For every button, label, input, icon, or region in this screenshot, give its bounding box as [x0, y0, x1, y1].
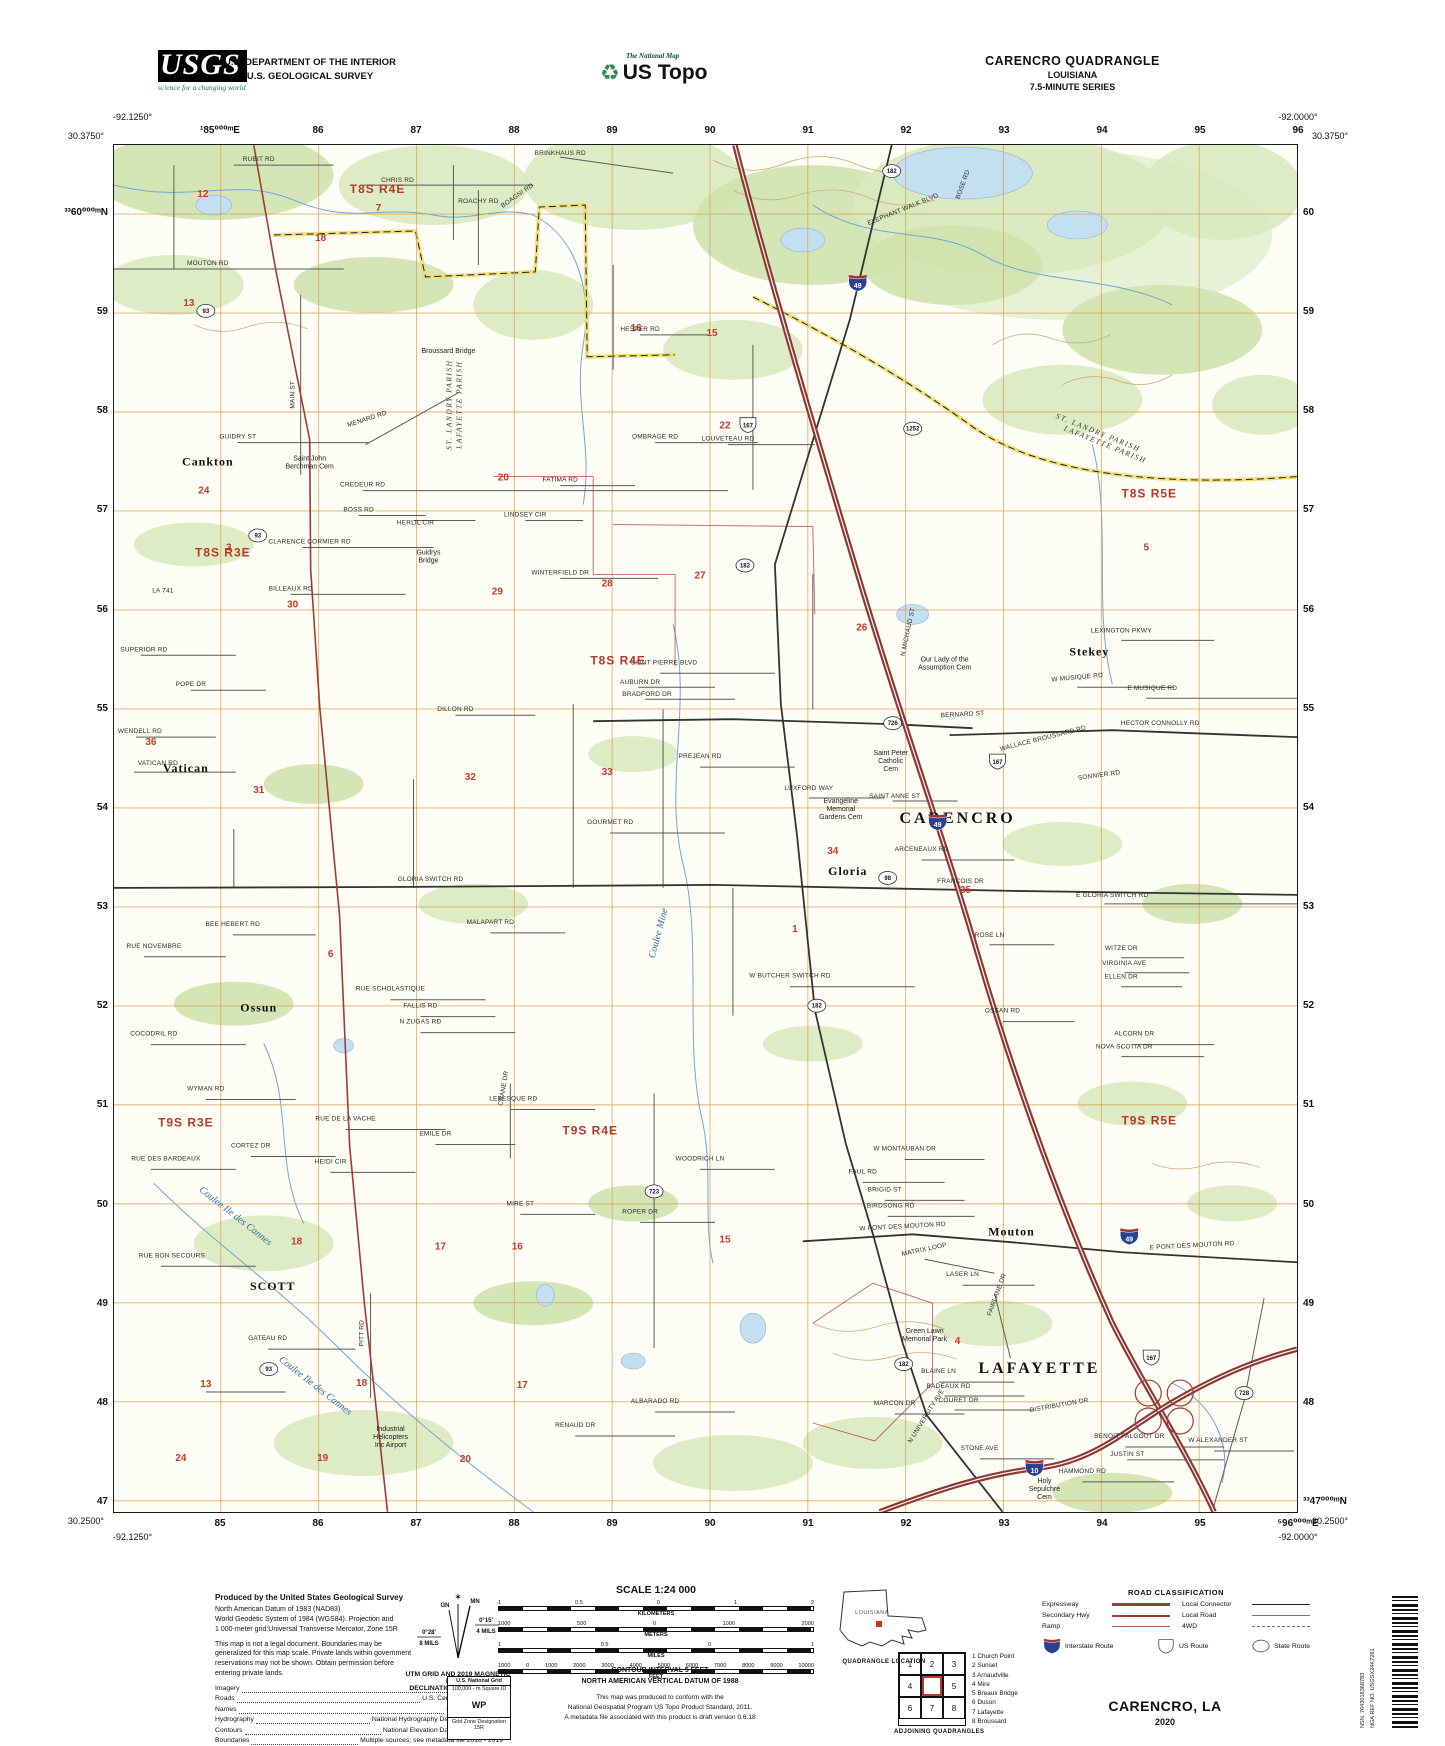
- rd-label: BOSS RD: [343, 507, 374, 514]
- town-label: T8S R3E: [195, 545, 251, 559]
- rd-label: BEE HEBERT RD: [206, 921, 261, 928]
- sec-label: 13: [200, 1379, 212, 1390]
- place-label: SCOTT: [250, 1279, 296, 1293]
- rd-label: LINDSEY CIR: [504, 512, 547, 519]
- interstate-shield: [1044, 1639, 1060, 1654]
- sec-label: 1: [792, 924, 798, 935]
- svg-text:182: 182: [899, 1362, 910, 1368]
- adjoining-cell: 8: [943, 1697, 965, 1719]
- rd-label: ALBARADO RD: [631, 1398, 680, 1405]
- svg-text:93: 93: [265, 1367, 272, 1373]
- gn-label: GN: [441, 1603, 450, 1609]
- grid-label: 93: [959, 125, 1049, 136]
- rd-label: HECTOR CONNOLLY RD: [1121, 720, 1200, 727]
- grid-label: 86: [273, 125, 363, 136]
- rd-label: W BUTCHER SWITCH RD: [749, 973, 831, 980]
- place-label: Ossun: [240, 1001, 277, 1015]
- svg-text:167: 167: [993, 760, 1004, 766]
- town-label: T8S R4E: [350, 182, 406, 196]
- rd-label: GLORIA SWITCH RD: [398, 876, 464, 883]
- standard-note: This map was produced to conform with th…: [470, 1693, 850, 1723]
- grid-label: 50: [0, 1199, 108, 1210]
- road-class-row: 4WD: [1182, 1623, 1310, 1630]
- gn-mils: 8 MILS: [419, 1641, 438, 1647]
- sec-label: 12: [197, 189, 209, 200]
- state-label: LOUISIANA: [855, 1610, 889, 1616]
- usgs-topo-sheet: USGS science for a changing world U.S. D…: [0, 0, 1445, 1746]
- svg-text:49: 49: [934, 822, 942, 829]
- quad-series: 7.5-MINUTE SERIES: [940, 82, 1205, 92]
- grid-label: 51: [1303, 1099, 1423, 1110]
- svg-text:49: 49: [854, 283, 862, 290]
- grid-label: 53: [0, 901, 108, 912]
- quad-title-block: CARENCRO QUADRANGLE LOUISIANA 7.5-MINUTE…: [940, 54, 1205, 92]
- place-label: Vatican: [163, 761, 209, 775]
- quad-title: CARENCRO QUADRANGLE: [940, 54, 1205, 68]
- grid-label: 91: [763, 1518, 853, 1529]
- mn-mils: 4 MILS: [476, 1629, 495, 1635]
- svg-text:1252: 1252: [906, 427, 920, 433]
- sec-label: 22: [719, 421, 731, 432]
- parish-label: LAFAYETTE PARISH: [454, 361, 463, 450]
- state-route-shield: 182: [883, 165, 901, 178]
- state-route-shield: 182: [895, 1358, 913, 1371]
- svg-text:723: 723: [649, 1189, 660, 1195]
- grid-label: 88: [469, 125, 559, 136]
- state-route-shield: 1252: [904, 422, 922, 435]
- grid-label: 49: [1303, 1298, 1423, 1309]
- rd-label: ROSE LN: [975, 932, 1005, 939]
- rd-label: NOVA SCOTIA DR: [1096, 1044, 1153, 1051]
- sec-label: 7: [376, 203, 382, 214]
- adjoining-cell: 7: [921, 1697, 943, 1719]
- grid-label: 95: [1155, 1518, 1245, 1529]
- contour-note: CONTOUR INTERVAL 5 FEET: [470, 1666, 850, 1677]
- legend-shield-item: US Route: [1156, 1637, 1208, 1655]
- corner-lon: -92.1250°: [113, 112, 152, 122]
- quad-location-marker: [876, 1621, 882, 1627]
- rd-label: E GLORIA SWITCH RD: [1076, 892, 1148, 899]
- state-route-shield: 182: [736, 559, 754, 572]
- rd-label: MAIN ST: [290, 381, 297, 409]
- grid-label: 60: [1303, 207, 1423, 218]
- grid-label: 89: [567, 1518, 657, 1529]
- rd-label: MOUTON RD: [187, 260, 229, 267]
- grid-label: 89: [567, 125, 657, 136]
- town-label: T8S R4E: [590, 653, 646, 667]
- usng-zone: 15R: [448, 1725, 510, 1731]
- grid-label: 90: [665, 1518, 755, 1529]
- rd-label: BADEAUX RD: [927, 1383, 971, 1390]
- barcode-text: NSN. 7643016368783 NGA REF NO. USGSX24K7…: [1352, 1596, 1386, 1728]
- rd-label: BIRDSONG RD: [867, 1202, 915, 1209]
- sec-label: 18: [291, 1236, 303, 1247]
- rd-label: COURET DR: [939, 1397, 979, 1404]
- sec-label: 36: [145, 737, 157, 748]
- sec-label: 31: [253, 785, 265, 796]
- sec-label: 15: [706, 328, 718, 339]
- quad-state: LOUISIANA: [940, 70, 1205, 80]
- rd-label: RUBIT RD: [243, 156, 275, 163]
- adjoining-quads: 12345678 1 Church Point2 Sunset3 Arnaudv…: [898, 1652, 1083, 1735]
- place-label: Stekey: [1069, 644, 1109, 658]
- sec-label: 26: [856, 622, 868, 633]
- corner-lon: -92.0000°: [1246, 1532, 1350, 1542]
- rd-label: PREJEAN RD: [679, 753, 722, 760]
- svg-text:182: 182: [740, 563, 751, 569]
- sec-label: 13: [183, 298, 195, 309]
- rd-label: FALLIS RD: [403, 1003, 437, 1010]
- adjoining-cell: 4: [899, 1675, 921, 1697]
- louisiana-outline: [840, 1590, 926, 1646]
- grid-label: 86: [273, 1518, 363, 1529]
- svg-text:98: 98: [884, 876, 891, 882]
- rd-label: LASER LN: [946, 1271, 979, 1278]
- sec-label: 18: [315, 233, 327, 244]
- rd-label: BILLEAUX RD: [269, 585, 313, 592]
- grid-label: 56: [0, 604, 108, 615]
- sec-label: 16: [512, 1241, 524, 1252]
- grid-label: 57: [0, 504, 108, 515]
- adjoining-cell: 5: [943, 1675, 965, 1697]
- grid-label: ³³60⁰⁰⁰ᵐN: [0, 207, 108, 218]
- ustopo-label: US Topo: [623, 61, 708, 85]
- map-notes: CONTOUR INTERVAL 5 FEET NORTH AMERICAN V…: [470, 1666, 850, 1723]
- rd-label: ROPER DR: [622, 1208, 658, 1215]
- rd-label: JUSTIN ST: [1110, 1451, 1145, 1458]
- svg-text:167: 167: [743, 424, 754, 430]
- town-label: T9S R5E: [1121, 1113, 1177, 1127]
- sec-label: 29: [492, 586, 504, 597]
- poi-label: GuidrysBridge: [416, 549, 441, 564]
- grid-label: ⁵96⁰⁰⁰ᵐE: [1253, 1518, 1343, 1529]
- svg-text:182: 182: [887, 169, 898, 175]
- grid-label: 55: [0, 703, 108, 714]
- sheet-year: 2020: [1060, 1717, 1270, 1727]
- place-label: Cankton: [182, 455, 234, 469]
- sec-label: 19: [317, 1453, 329, 1464]
- nsn-number: NSN. 7643016368783: [1360, 1673, 1366, 1728]
- grid-label: 48: [1303, 1397, 1423, 1408]
- corner-lat: 30.3750°: [0, 131, 104, 141]
- ustopo-logo: The National Map ♻ US Topo: [600, 52, 730, 86]
- rd-label: LEBESQUE RD: [489, 1096, 537, 1103]
- sec-label: 18: [356, 1378, 368, 1389]
- grid-label: 52: [1303, 1000, 1423, 1011]
- road-class-row: Local Connector: [1182, 1601, 1310, 1608]
- road-class-row: Expressway: [1042, 1601, 1170, 1608]
- grid-label: 49: [0, 1298, 108, 1309]
- sec-label: 33: [602, 767, 614, 778]
- national-map-label: The National Map: [626, 52, 730, 60]
- poi-label: IndustrialHelicoptersInc Airport: [373, 1426, 408, 1449]
- poi-label: Green LawnMemorial Park: [902, 1328, 947, 1343]
- rd-label: HERLIL CIR: [397, 520, 434, 527]
- rd-label: LEXINGTON PKWY: [1091, 627, 1152, 634]
- grid-label: 57: [1303, 504, 1423, 515]
- agency-line2: U.S. GEOLOGICAL SURVEY: [215, 70, 405, 84]
- rd-label: BLAINE LN: [921, 1368, 956, 1375]
- rd-label: RUE DES BARDEAUX: [131, 1155, 201, 1162]
- parish-label: ST. LANDRY PARISH: [444, 360, 453, 450]
- rd-label: BRINKHAUS RD: [535, 150, 586, 157]
- true-north-star: ✶: [454, 1592, 462, 1602]
- grid-label: 54: [0, 802, 108, 813]
- rd-label: RUE DE LA VACHE: [315, 1116, 376, 1123]
- poi-label: Our Lady of theAssumption Cem: [918, 656, 971, 671]
- place-big-label: LAFAYETTE: [978, 1360, 1100, 1377]
- sec-label: 27: [694, 570, 706, 581]
- sheet-name: CARENCRO, LA: [1060, 1698, 1270, 1714]
- rd-label: MIRE ST: [506, 1200, 534, 1207]
- grid-label: 58: [0, 405, 108, 416]
- grid-label: 90: [665, 125, 755, 136]
- poi-label: Broussard Bridge: [422, 348, 476, 355]
- rd-label: GUIDRY ST: [219, 434, 256, 441]
- adjoining-names: 1 Church Point2 Sunset3 Arnaudville4 Mir…: [972, 1652, 1018, 1726]
- rd-label: FRANCOIS DR: [937, 878, 984, 885]
- scale-bar: 10.5012KILOMETERS: [498, 1600, 814, 1618]
- state-route-shield: 182: [808, 999, 826, 1012]
- road-class-row: Secondary Hwy: [1042, 1612, 1170, 1619]
- sheet-imprint: CARENCRO, LA 2020: [1060, 1698, 1270, 1727]
- place-label: Mouton: [988, 1224, 1035, 1238]
- sec-label: 6: [328, 949, 334, 960]
- rd-label: AUBURN DR: [620, 679, 660, 686]
- adjoining-cell: [921, 1675, 943, 1697]
- rd-label: MARCON DR: [874, 1400, 916, 1407]
- grid-label: 47: [0, 1496, 108, 1507]
- town-label: T8S R5E: [1121, 487, 1177, 501]
- grid-label: 59: [1303, 306, 1423, 317]
- sec-label: 15: [719, 1234, 731, 1245]
- rd-label: WINTERFIELD DR: [531, 569, 589, 576]
- rd-label: WYMAN RD: [187, 1086, 225, 1093]
- grid-label: 87: [371, 125, 461, 136]
- vertical-datum-note: NORTH AMERICAN VERTICAL DATUM OF 1988: [470, 1677, 850, 1688]
- state-route-shield: 728: [1235, 1387, 1253, 1400]
- rd-label: WOODRICH LN: [676, 1155, 725, 1162]
- corner-lat: 30.3750°: [1312, 131, 1348, 141]
- state-route-shield: 726: [884, 717, 902, 730]
- adjoining-caption: ADJOINING QUADRANGLES: [894, 1729, 1083, 1735]
- grid-label: 88: [469, 1518, 559, 1529]
- svg-text:93: 93: [203, 309, 210, 315]
- adjoining-cell: 2: [921, 1653, 943, 1675]
- adjoining-cell: 3: [943, 1653, 965, 1675]
- svg-text:167: 167: [1146, 1356, 1157, 1362]
- sec-label: 30: [287, 599, 299, 610]
- grid-label: 52: [0, 1000, 108, 1011]
- grid-label: 85: [175, 1518, 265, 1529]
- rd-label: PITT RD: [359, 1320, 366, 1347]
- sec-label: 24: [198, 486, 210, 497]
- rd-label: HEIDI CIR: [315, 1158, 347, 1165]
- rd-label: SUPERIOR RD: [120, 646, 167, 653]
- legend-shield-item: Interstate Route: [1042, 1637, 1113, 1655]
- place-big-label: CARENCRO: [899, 810, 1015, 827]
- grid-label: 92: [861, 1518, 951, 1529]
- grid-label: 55: [1303, 703, 1423, 714]
- state-route-shield: 93: [260, 1363, 278, 1376]
- rd-label: BRIGID ST: [868, 1186, 902, 1193]
- rd-label: BENOIT FALGOUT DR: [1094, 1433, 1164, 1440]
- rd-label: STONE AVE: [961, 1445, 999, 1452]
- road-class-row: Ramp: [1042, 1623, 1170, 1630]
- adjoining-grid: 12345678: [898, 1652, 966, 1726]
- rd-label: RENAUD DR: [555, 1422, 595, 1429]
- rd-label: OMBRAGE RD: [632, 434, 678, 441]
- svg-text:182: 182: [812, 1004, 823, 1010]
- rd-label: LOUVETEAU RD: [702, 436, 755, 443]
- sec-label: 20: [498, 473, 510, 484]
- sec-label: 17: [517, 1380, 529, 1391]
- corner-lat: 30.2500°: [0, 1516, 104, 1526]
- grid-label: ³³47⁰⁰⁰ᵐN: [1303, 1496, 1423, 1507]
- rd-label: SAINT ANNE ST: [869, 793, 920, 800]
- grid-label: ¹85⁰⁰⁰ᵐE: [175, 125, 265, 136]
- scale-heading: SCALE 1:24 000: [498, 1584, 814, 1596]
- state-route-shield: 93: [197, 304, 215, 317]
- topo-map: 1218713161522242033029282726531363233343…: [114, 145, 1297, 1512]
- grid-label: 94: [1057, 125, 1147, 136]
- sec-label: 5: [1143, 542, 1149, 553]
- grid-label: 54: [1303, 802, 1423, 813]
- adjoining-cell: 1: [899, 1653, 921, 1675]
- svg-text:10: 10: [1031, 1468, 1039, 1475]
- rd-label: MALAPART RD: [467, 919, 515, 926]
- grid-label: 93: [959, 1518, 1049, 1529]
- rd-label: CORTEZ DR: [231, 1142, 271, 1149]
- grid-label: 96: [1253, 125, 1343, 136]
- road-class-title: ROAD CLASSIFICATION: [1042, 1588, 1310, 1597]
- rd-label: EMILE DR: [419, 1130, 451, 1137]
- svg-text:728: 728: [1239, 1391, 1250, 1397]
- rd-label: CREDEUR RD: [340, 482, 385, 489]
- scale-bar: 10.501MILES: [498, 1642, 814, 1660]
- grid-label: 95: [1155, 125, 1245, 136]
- rd-label: FAUL RD: [848, 1168, 877, 1175]
- rd-label: RUE SCHOLASTIQUE: [356, 986, 426, 993]
- sec-label: 20: [460, 1454, 472, 1465]
- adjoining-cell: 6: [899, 1697, 921, 1719]
- sec-label: 28: [602, 578, 614, 589]
- svg-text:49: 49: [1125, 1236, 1133, 1243]
- mn-value: 0°15': [479, 1618, 493, 1624]
- rd-label: N ZUGAS RD: [400, 1019, 442, 1026]
- svg-text:93: 93: [254, 533, 261, 539]
- rd-label: POPE DR: [176, 681, 207, 688]
- grid-label: 94: [1057, 1518, 1147, 1529]
- rd-label: ARCENEAUX RD: [895, 846, 949, 853]
- rd-label: ELLEN DR: [1105, 974, 1138, 981]
- us-route-shield: [1159, 1640, 1173, 1654]
- rd-label: BRADFORD DR: [622, 691, 672, 698]
- ustopo-icon: ♻: [600, 60, 620, 86]
- rd-label: WITZE DR: [1105, 945, 1138, 952]
- svg-text:726: 726: [888, 721, 899, 727]
- grid-label: 87: [371, 1518, 461, 1529]
- state-route-shield: [1253, 1640, 1269, 1652]
- corner-lon: -92.0000°: [1246, 112, 1350, 122]
- grid-label: 59: [0, 306, 108, 317]
- grid-label: 56: [1303, 604, 1423, 615]
- state-route-shield: 93: [249, 529, 267, 542]
- agency-title: U.S. DEPARTMENT OF THE INTERIOR U.S. GEO…: [215, 56, 405, 85]
- grid-label: 91: [763, 125, 853, 136]
- rd-label: COCODRIL RD: [130, 1031, 177, 1038]
- sec-label: 17: [435, 1241, 447, 1252]
- rd-label: HESPER RD: [620, 326, 660, 333]
- grid-label: 48: [0, 1397, 108, 1408]
- state-route-shield: 723: [645, 1185, 663, 1198]
- road-class-row: Local Road: [1182, 1612, 1310, 1619]
- legend-shield-item: State Route: [1251, 1637, 1310, 1655]
- agency-line1: U.S. DEPARTMENT OF THE INTERIOR: [215, 56, 405, 70]
- rd-label: W MONTAUBAN DR: [873, 1145, 936, 1152]
- sec-label: 32: [465, 772, 477, 783]
- rd-label: RUE BON SECOURS: [139, 1252, 206, 1259]
- barcode: [1392, 1596, 1418, 1728]
- corner-lon: -92.1250°: [113, 1532, 152, 1542]
- rd-label: RUE NOVEMBRE: [126, 943, 181, 950]
- sec-label: 24: [175, 1453, 187, 1464]
- rd-label: FATIMA RD: [543, 477, 579, 484]
- rd-label: ALCORN DR: [1114, 1031, 1154, 1038]
- rd-label: DILLON RD: [437, 706, 473, 713]
- state-route-shield: 98: [879, 871, 897, 884]
- scale-bar: 1000500010002000METERS: [498, 1621, 814, 1639]
- road-classification: ROAD CLASSIFICATION ExpresswaySecondary …: [1042, 1588, 1310, 1655]
- nga-ref: NGA REF NO. USGSX24K7261: [1370, 1648, 1376, 1728]
- rd-label: E MUSIQUE RD: [1127, 685, 1177, 692]
- grid-label: 50: [1303, 1199, 1423, 1210]
- rd-label: HAMMOND RD: [1059, 1468, 1106, 1475]
- sec-label: 4: [955, 1336, 961, 1347]
- grid-label: 51: [0, 1099, 108, 1110]
- rd-label: VIRGINIA AVE: [1102, 960, 1147, 967]
- sec-label: 34: [827, 846, 839, 857]
- town-label: T9S R4E: [562, 1123, 618, 1137]
- rd-label: OSSAN RD: [985, 1008, 1021, 1015]
- mn-label: MN: [470, 1599, 479, 1605]
- corner-lat: 30.2500°: [1312, 1516, 1348, 1526]
- rd-label: W ALEXANDER ST: [1188, 1437, 1248, 1444]
- grid-label: 92: [861, 125, 951, 136]
- map-neatline: 1218713161522242033029282726531363233343…: [113, 144, 1298, 1513]
- gn-value: 0°28': [422, 1630, 436, 1636]
- rd-label: GATEAU RD: [248, 1335, 287, 1342]
- grid-label: 53: [1303, 901, 1423, 912]
- place-label: Gloria: [828, 864, 867, 878]
- town-label: T9S R3E: [158, 1115, 214, 1129]
- sec-label: 35: [960, 885, 972, 896]
- rd-label: LA 741: [152, 587, 174, 594]
- rd-label: WENDELL RD: [118, 728, 162, 735]
- rd-label: LUXFORD WAY: [784, 785, 833, 792]
- rd-label: ROACHY RD: [458, 198, 499, 205]
- rd-label: CLARENCE CORMIER RD: [268, 538, 351, 545]
- rd-label: GOURMET RD: [587, 819, 633, 826]
- grid-label: 58: [1303, 405, 1423, 416]
